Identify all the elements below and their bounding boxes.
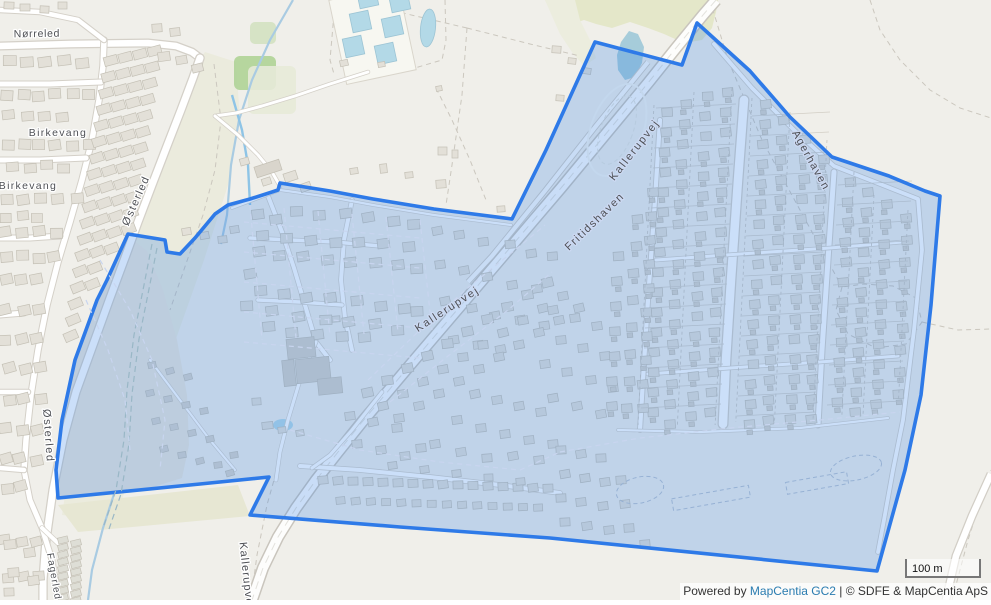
- svg-text:100 m: 100 m: [912, 563, 943, 575]
- svg-text:Powered by MapCentia GC2 | © S: Powered by MapCentia GC2 | © SDFE & MapC…: [683, 584, 988, 598]
- svg-text:Birkevang: Birkevang: [0, 180, 57, 192]
- svg-text:Birkevang: Birkevang: [29, 127, 87, 139]
- svg-text:Nørreled: Nørreled: [14, 28, 61, 41]
